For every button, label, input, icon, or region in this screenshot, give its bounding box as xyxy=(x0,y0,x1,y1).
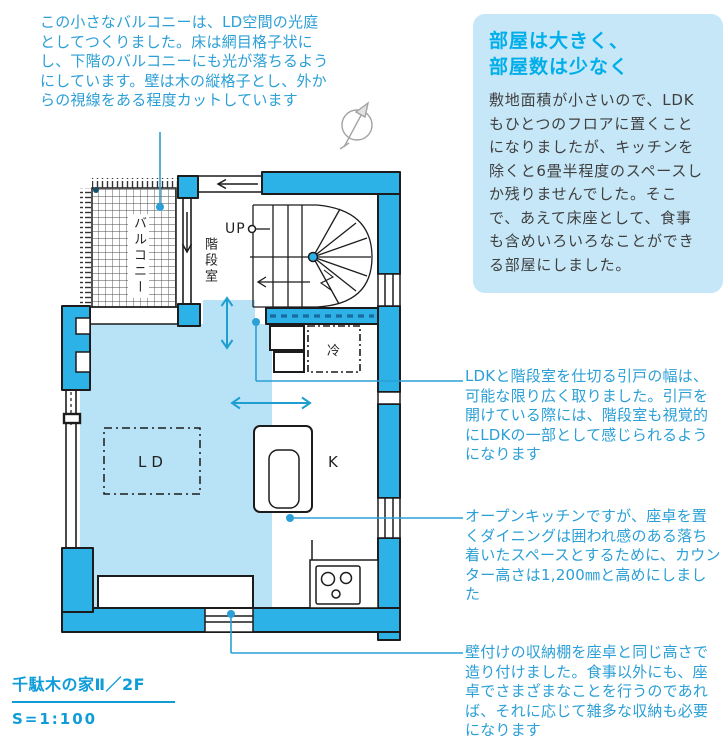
up-marker xyxy=(249,226,256,233)
north-arrow-icon xyxy=(340,103,372,149)
info-box-body: 敷地面積が小さいので、LDKもひとつのフロアに置くことになりましたが、キッチンを… xyxy=(489,89,707,277)
annotation-kitchen-counter: オープンキッチンですが、座卓を置くダイニングは囲われ感のある落ち着いたスペースと… xyxy=(465,507,721,605)
balcony-callout: この小さなバルコニーは、LD空間の光庭としてつくりました。床は網目格子状にし、下… xyxy=(40,13,330,111)
info-box-heading: 部屋は大きく、 部屋数は少なく xyxy=(489,28,707,80)
storage-shelf xyxy=(98,576,253,608)
plan-title: 千駄木の家Ⅱ／2F xyxy=(12,671,212,695)
info-heading-line1: 部屋は大きく、 xyxy=(489,28,707,54)
plan-caption: 千駄木の家Ⅱ／2F S=1:100 xyxy=(12,671,212,728)
balcony-grill-west xyxy=(80,188,91,306)
up-label: UP xyxy=(225,221,246,237)
book-page: この小さなバルコニーは、LD空間の光庭としてつくりました。床は網目格子状にし、下… xyxy=(0,0,728,752)
kitchen-label: K xyxy=(328,453,339,471)
concept-info-box: 部屋は大きく、 部屋数は少なく 敷地面積が小さいので、LDKもひとつのフロアに置… xyxy=(473,14,723,293)
annotation-sliding-door: LDKと階段室を仕切る引戸の幅は、可能な限り広く取りました。引戸を開けている際に… xyxy=(465,367,721,465)
balcony-label: バルコニー xyxy=(128,214,149,298)
balcony-grill-north xyxy=(92,178,178,188)
plan-scale: S=1:100 xyxy=(12,710,212,728)
info-heading-line2: 部屋数は少なく xyxy=(489,54,707,80)
ld-floor xyxy=(80,300,272,608)
fridge-label: 冷 xyxy=(327,340,341,359)
annotation-storage-shelf: 壁付けの収納棚を座卓と同じ高さで造り付けました。食事以外にも、座卓でさまざまなこ… xyxy=(465,643,721,741)
stair-room-label: 階段室 xyxy=(199,235,220,287)
living-dining-label: LD xyxy=(138,453,168,471)
spiral-staircase xyxy=(249,205,373,307)
kitchen-counter xyxy=(254,426,312,512)
caption-divider xyxy=(12,701,175,703)
kitchen-fixtures xyxy=(254,326,378,608)
